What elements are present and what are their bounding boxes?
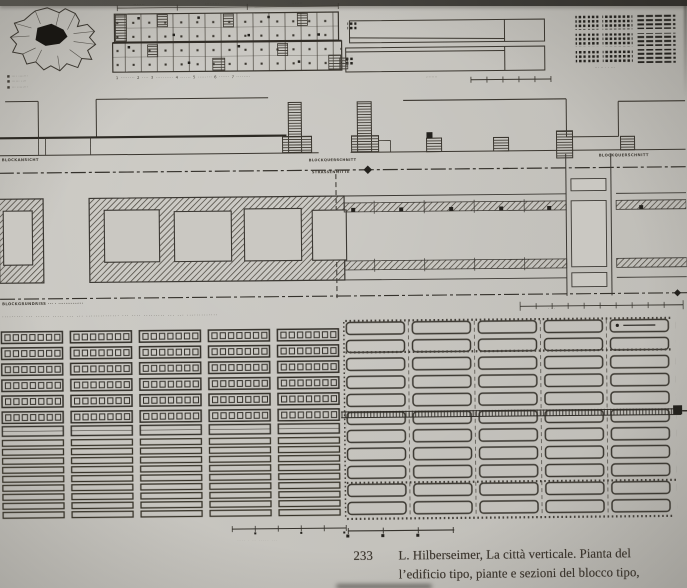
figure-caption: L. Hilberseimer, La città verticale. Pia… xyxy=(398,544,639,583)
site-key-plan xyxy=(575,14,675,64)
elevation-label-right: BLOCKQUERSCHNITT xyxy=(599,153,649,158)
block-plan xyxy=(0,153,687,302)
building-roof-plan xyxy=(339,19,551,84)
scale-bar-site-right xyxy=(346,527,454,538)
map-center-fill xyxy=(35,24,67,46)
scale-bar-site-left xyxy=(232,525,346,535)
photo-edge-bottom-shadow xyxy=(336,584,432,588)
figure-number: 233 xyxy=(353,547,373,566)
elevation-label-left: BLOCKANSICHT xyxy=(2,157,39,162)
berlin-district-map xyxy=(10,7,96,71)
map-legend-line: ■ ······ ···· xyxy=(7,80,27,84)
page-sheet: ■ ···· ······· ■ ······ ···· ■ ··· ·····… xyxy=(0,0,687,588)
caption-line-2: l’edificio tipo, piante e sezioni del bl… xyxy=(399,563,640,584)
scale-bar-roof xyxy=(471,76,551,83)
figure-drawing xyxy=(0,0,687,588)
site-plan-lower-city xyxy=(0,327,347,537)
block-plan-label: BLOCKGRUNDRISS ··· · ·············· xyxy=(2,301,83,306)
site-plan-upper-city xyxy=(340,317,687,538)
cross-street xyxy=(566,153,612,295)
keyplan-label: ··· ·· · · ··· xyxy=(595,65,665,72)
photo-edge-top xyxy=(0,0,687,6)
block-elevation xyxy=(0,94,686,164)
map-legend-line: ■ ··· ········ xyxy=(7,86,28,90)
centreline-label-top: BLOCKQUERSCHNITT xyxy=(309,158,357,162)
roof-scale-label: ········ xyxy=(426,76,438,80)
show-through-ghost-text: ···· · ·· ····· ··· xyxy=(237,540,278,544)
typical-building-floor-plan xyxy=(112,3,342,72)
centreline-label-bottom: STRASSENMITTE xyxy=(312,170,350,174)
book-page-photo: ■ ···· ······· ■ ······ ···· ■ ··· ·····… xyxy=(0,0,687,588)
caption-line-1: L. Hilberseimer, La città verticale. Pia… xyxy=(398,544,639,565)
stair-tower xyxy=(282,102,378,153)
map-legend-line: ■ ···· ······· xyxy=(7,75,28,79)
